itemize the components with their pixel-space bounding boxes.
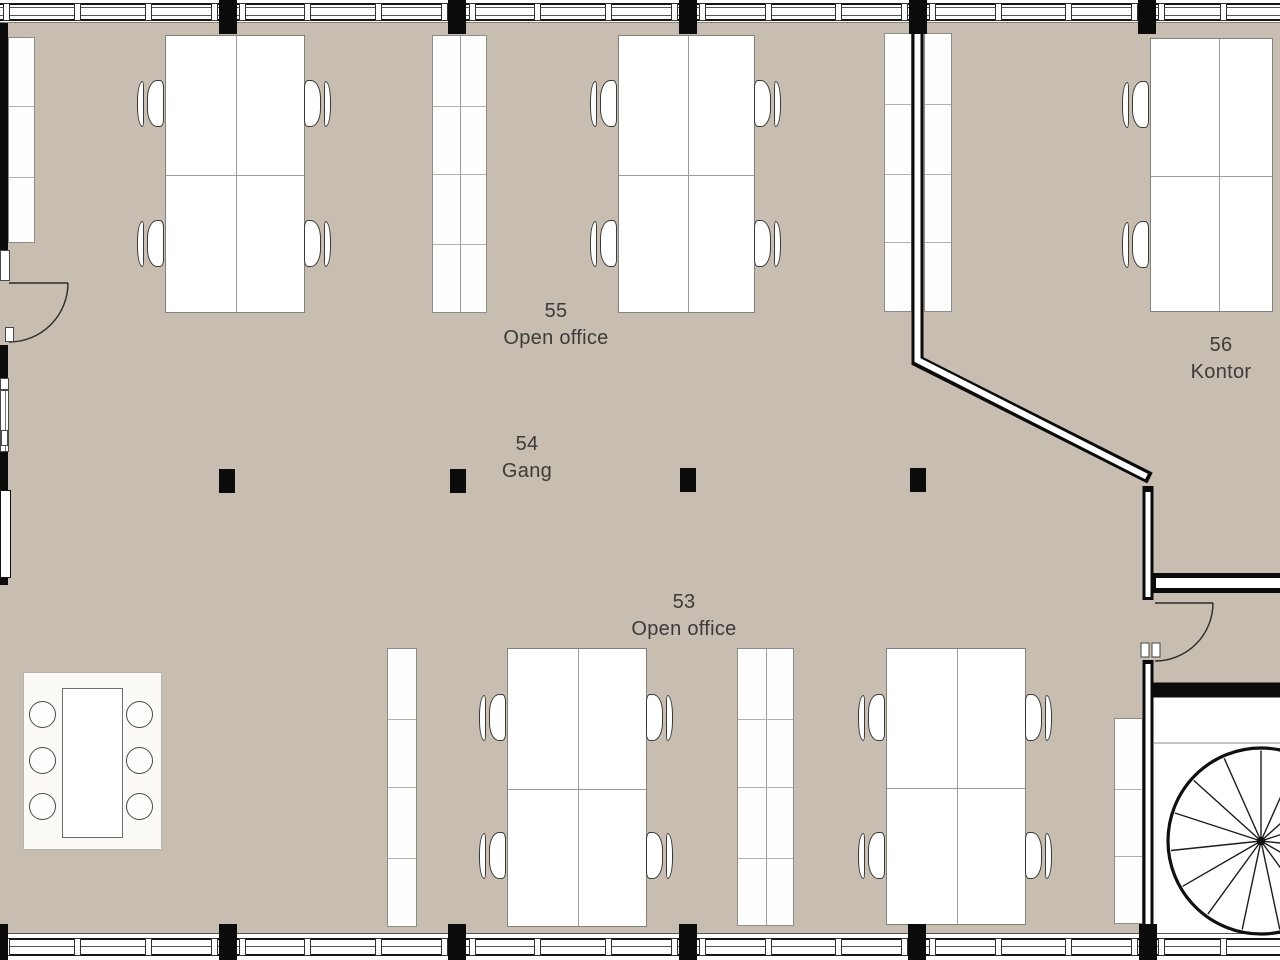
left-wall — [0, 578, 8, 585]
left-wall — [0, 345, 8, 378]
partition-wall-56 — [918, 23, 1151, 478]
door-stop — [5, 327, 14, 342]
window-handle — [1, 430, 8, 446]
left-wall-opening — [0, 378, 9, 390]
room-name: Kontor — [1121, 359, 1280, 386]
left-wall — [0, 23, 8, 250]
room-name: Gang — [427, 458, 627, 485]
stair-center-post — [1257, 837, 1265, 845]
left-wall-panel — [0, 490, 11, 578]
door-jamb — [1152, 643, 1160, 657]
room-label-56: 56 Kontor — [1121, 332, 1280, 386]
room-name: Open office — [584, 616, 784, 643]
room-number: 56 — [1121, 332, 1280, 359]
room-number: 55 — [456, 298, 656, 325]
room-number: 54 — [427, 431, 627, 458]
door-jamb — [1141, 643, 1149, 657]
left-door-frame — [0, 250, 10, 281]
room-label-54: 54 Gang — [427, 431, 627, 485]
room-label-53: 53 Open office — [584, 589, 784, 643]
room-name: Open office — [456, 325, 656, 352]
walls-and-stairs — [0, 0, 1280, 960]
door-swing — [9, 283, 68, 342]
floor-plan: 55 Open office 54 Gang 53 Open office 56… — [0, 0, 1280, 960]
room-number: 53 — [584, 589, 784, 616]
partition-wall-56-core — [918, 34, 1147, 477]
room-label-55: 55 Open office — [456, 298, 656, 352]
left-wall — [0, 452, 8, 490]
door-swing — [1155, 603, 1213, 661]
